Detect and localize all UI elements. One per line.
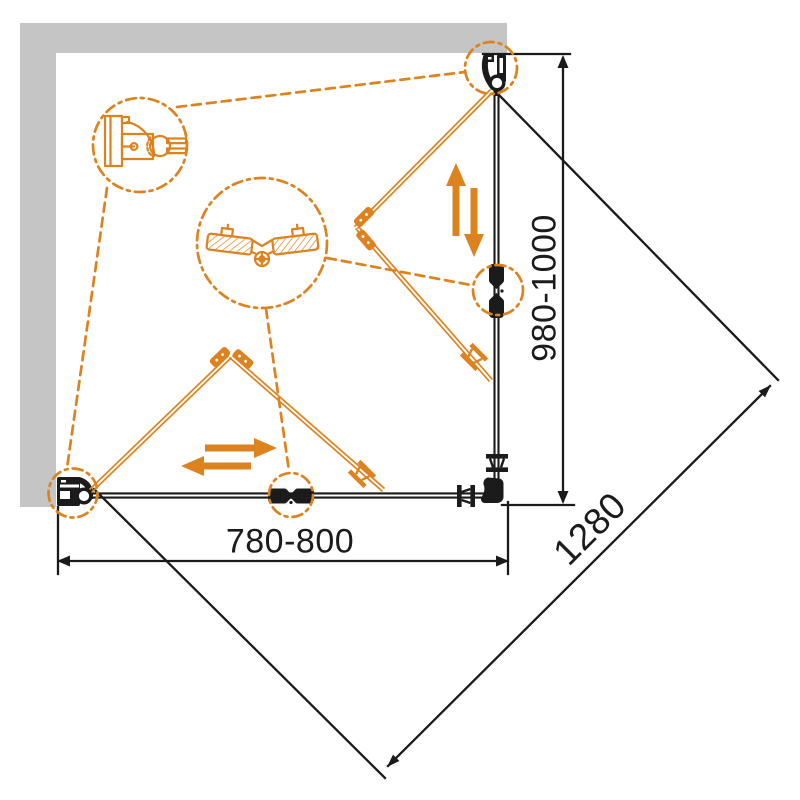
dimension-width-label: 780-800 bbox=[226, 523, 354, 562]
door-open-bottom-side bbox=[90, 346, 384, 492]
glass-panel-right bbox=[495, 90, 499, 495]
wall-profile-detail-icon bbox=[105, 116, 186, 166]
detail-circle-wall-profile bbox=[93, 98, 187, 192]
dimension-line-diagonal bbox=[388, 386, 770, 766]
bottom-roller-hinge bbox=[57, 477, 93, 506]
wall-mount-bracket bbox=[489, 264, 504, 318]
slide-arrows-horizontal bbox=[181, 438, 277, 476]
leader-line bbox=[67, 188, 107, 468]
diagram-canvas: 780-800 980-1000 1280 bbox=[0, 0, 800, 800]
wall-top bbox=[20, 23, 507, 53]
top-roller-wheel bbox=[490, 76, 504, 90]
enclosure-drawing bbox=[0, 0, 800, 800]
bottom-roller-wheel bbox=[77, 489, 91, 503]
wall-left bbox=[20, 23, 56, 507]
glass-clamp-detail-icon bbox=[206, 222, 318, 266]
dimension-depth-label: 980-1000 bbox=[526, 214, 565, 362]
door-pivot-connector bbox=[231, 348, 254, 370]
center-glass-connector bbox=[268, 489, 314, 505]
detail-callouts bbox=[49, 42, 524, 518]
leader-line bbox=[177, 72, 465, 107]
floor-bracket-spool-bottom bbox=[457, 485, 475, 507]
slide-arrows-vertical bbox=[446, 163, 484, 257]
floor-bracket-spool-right bbox=[486, 454, 508, 472]
corner-elbow-connector bbox=[481, 478, 504, 504]
